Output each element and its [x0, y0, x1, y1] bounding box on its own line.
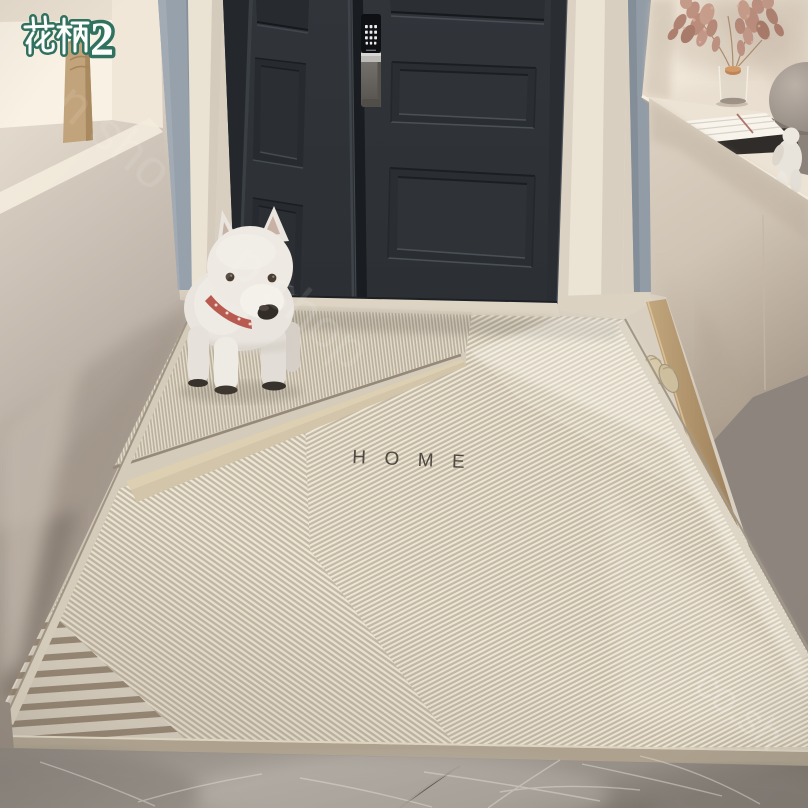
svg-text:2: 2	[90, 13, 114, 66]
